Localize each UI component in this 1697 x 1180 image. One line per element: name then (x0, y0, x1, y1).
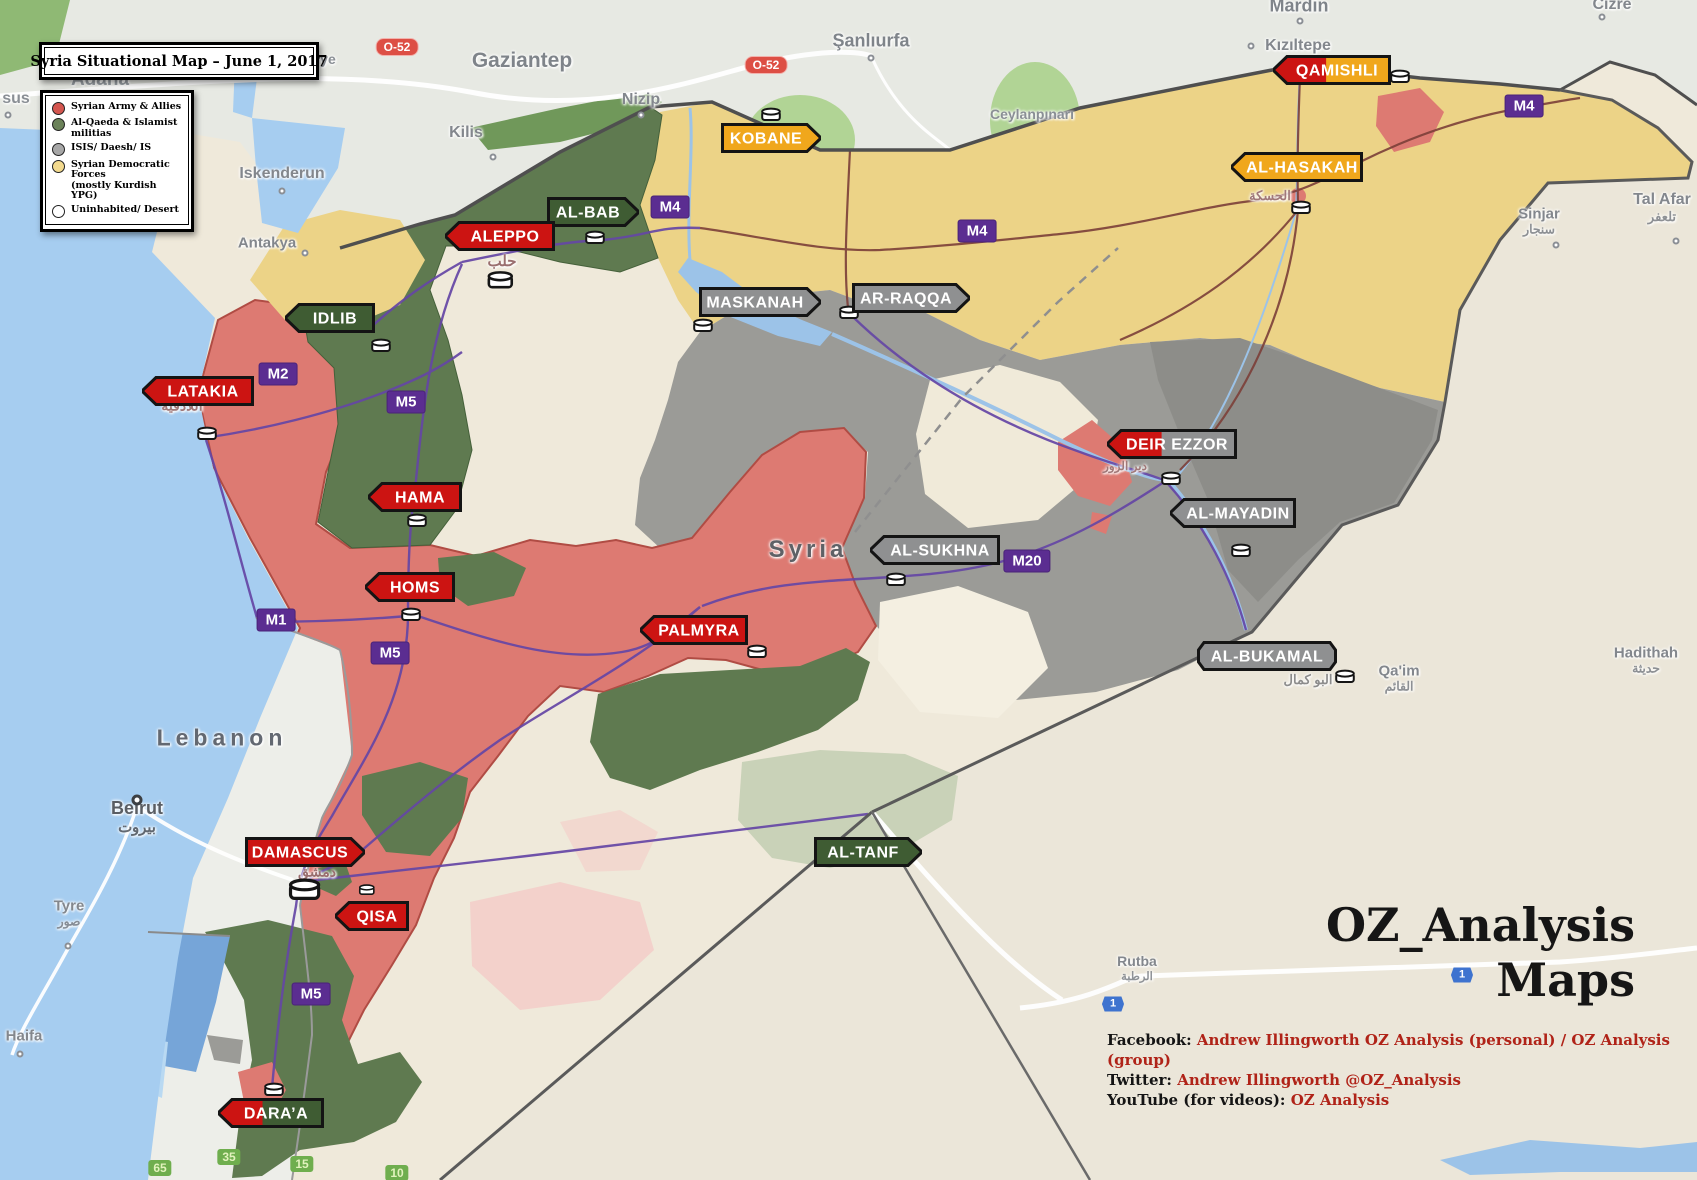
credit-line-twitter: Twitter: Andrew Illingworth @OZ_Analysis (1107, 1070, 1697, 1090)
map-title-panel: Syria Situational Map – June 1, 2017 (39, 42, 319, 80)
legend-label-isis: ISIS/ Daesh/ IS (71, 143, 151, 154)
legend-item-isis: ISIS/ Daesh/ IS (52, 143, 182, 156)
credit-line-youtube-for-videos: YouTube (for videos): OZ Analysis (1107, 1090, 1697, 1110)
legend-label-government: Syrian Army & Allies (71, 102, 181, 113)
legend-label-rebels: Al-Qaeda & Islamist militias (71, 118, 182, 139)
credit-platform: YouTube (for videos): (1107, 1091, 1291, 1109)
legend-list: Syrian Army & AlliesAl-Qaeda & Islamist … (45, 95, 189, 225)
credit-account: Andrew Illingworth @OZ_Analysis (1177, 1071, 1461, 1089)
legend-item-sdf: Syrian Democratic Forces(mostly Kurdish … (52, 160, 182, 202)
legend-swatch-government (52, 102, 65, 115)
credits: Facebook: Andrew Illingworth OZ Analysis… (1107, 1030, 1697, 1110)
watermark-line1: OZ_Analysis (1326, 898, 1635, 953)
map-canvas: susiyeAdanaGaziantepNizipKilisŞanlıurfaC… (0, 0, 1697, 1180)
credit-account: OZ Analysis (1291, 1091, 1390, 1109)
legend-panel: Syrian Army & AlliesAl-Qaeda & Islamist … (40, 90, 194, 232)
legend-item-rebels: Al-Qaeda & Islamist militias (52, 118, 182, 139)
map-title-frame: Syria Situational Map – June 1, 2017 (44, 47, 314, 75)
legend-swatch-isis (52, 143, 65, 156)
legend-label-desert: Uninhabited/ Desert (71, 205, 179, 216)
legend-swatch-desert (52, 205, 65, 218)
watermark-line2: Maps (1326, 953, 1635, 1008)
credit-platform: Facebook: (1107, 1031, 1197, 1049)
map-title: Syria Situational Map – June 1, 2017 (30, 53, 327, 70)
watermark: OZ_Analysis Maps (1326, 898, 1635, 1008)
credit-line-facebook: Facebook: Andrew Illingworth OZ Analysis… (1107, 1030, 1697, 1070)
legend-item-desert: Uninhabited/ Desert (52, 205, 182, 218)
legend-item-government: Syrian Army & Allies (52, 102, 182, 115)
credit-platform: Twitter: (1107, 1071, 1177, 1089)
legend-label-sdf: Syrian Democratic Forces(mostly Kurdish … (71, 160, 182, 202)
legend-sublabel-sdf: (mostly Kurdish YPG) (71, 181, 182, 202)
legend-swatch-rebels (52, 118, 65, 131)
legend-swatch-sdf (52, 160, 65, 173)
